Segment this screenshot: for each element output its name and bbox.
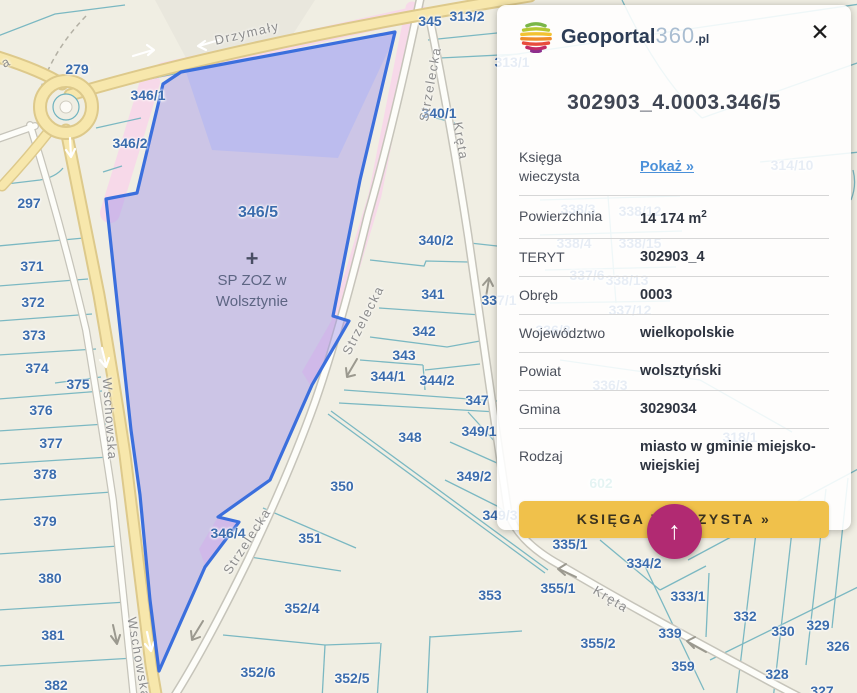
row-value: 3029034	[640, 400, 829, 419]
row-label: Powierzchnia	[519, 207, 640, 226]
parcel-attributes: Księga wieczysta Pokaż » Powierzchnia 14…	[519, 139, 829, 485]
globe-icon	[519, 19, 553, 53]
parcel-info-panel: Geoportal360.pl ✕ 302903_4.0003.346/5 Ks…	[497, 5, 851, 530]
row-label: Rodzaj	[519, 447, 640, 466]
row-label: Województwo	[519, 324, 640, 343]
geoportal-logo[interactable]: Geoportal360.pl	[519, 19, 833, 53]
row-powierzchnia: Powierzchnia 14 174 m2	[519, 196, 829, 239]
row-rodzaj: Rodzaj miasto w gminie miejsko-wiejskiej	[519, 429, 829, 485]
arrow-up-icon: ↑	[668, 517, 681, 545]
row-gmina: Gmina 3029034	[519, 391, 829, 429]
scroll-top-button[interactable]: ↑	[647, 504, 702, 559]
row-label: Księga wieczysta	[519, 148, 640, 186]
row-value: miasto w gminie miejsko-wiejskiej	[640, 438, 829, 476]
row-value: 302903_4	[640, 248, 829, 267]
row-value: 14 174 m2	[640, 205, 829, 229]
panel-header: Geoportal360.pl ✕	[497, 5, 851, 61]
close-icon[interactable]: ✕	[805, 17, 835, 47]
row-value: 0003	[640, 286, 829, 305]
row-label: Gmina	[519, 400, 640, 419]
row-wojewodztwo: Województwo wielkopolskie	[519, 315, 829, 353]
row-powiat: Powiat wolsztyński	[519, 353, 829, 391]
row-teryt: TERYT 302903_4	[519, 239, 829, 277]
geoportal-app: + SP ZOZ w Wolsztynie 279297346/1346/234…	[0, 0, 857, 693]
row-label: Obręb	[519, 286, 640, 305]
row-label: Powiat	[519, 362, 640, 381]
row-obreb: Obręb 0003	[519, 277, 829, 315]
row-ksiega-wieczysta: Księga wieczysta Pokaż »	[519, 139, 829, 196]
brand-text: Geoportal360.pl	[561, 23, 709, 49]
pokaz-link[interactable]: Pokaż »	[640, 159, 694, 175]
row-value: wielkopolskie	[640, 324, 829, 343]
row-value: wolsztyński	[640, 362, 829, 381]
parcel-id-title: 302903_4.0003.346/5	[507, 91, 841, 115]
row-label: TERYT	[519, 248, 640, 267]
